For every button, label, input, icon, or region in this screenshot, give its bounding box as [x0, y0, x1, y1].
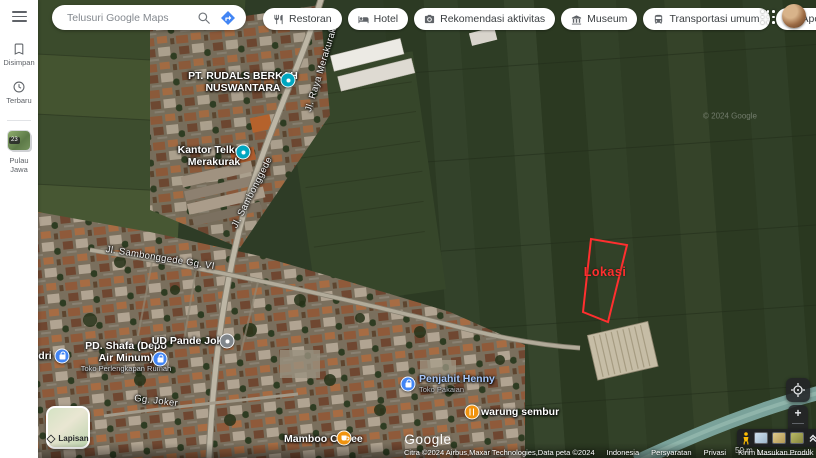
chip-rekomendasi-aktivitas[interactable]: Rekomendasi aktivitas [414, 8, 555, 30]
store-marker-pd-shafa[interactable] [153, 352, 168, 367]
menu-icon[interactable] [12, 11, 27, 22]
link-indonesia[interactable]: Indonesia [607, 448, 640, 457]
search-icon[interactable] [197, 11, 211, 25]
chip-label: Transportasi umum [669, 13, 759, 25]
shopping-bag-icon [405, 383, 411, 388]
search-bar[interactable] [52, 5, 246, 30]
museum-icon [571, 14, 582, 25]
store-marker-penjahit-henny[interactable] [401, 377, 416, 392]
bookmark-icon [12, 42, 26, 56]
bus-icon [653, 14, 664, 25]
locate-icon [791, 383, 805, 397]
generic-marker-ud-pande-joker[interactable] [220, 334, 235, 349]
recent-map-badge: 23 [9, 137, 20, 144]
imagery-thumbnail[interactable] [790, 432, 804, 444]
chip-label: Museum [587, 13, 627, 25]
layers-label: Lapisan [58, 434, 88, 443]
sidebar-item-terbaru[interactable]: Terbaru [6, 80, 31, 105]
directions-icon[interactable] [220, 10, 236, 26]
link-kirim-masukan[interactable]: Kirim Masukan Produk [738, 448, 813, 457]
shopping-bag-icon [157, 358, 163, 363]
avatar[interactable] [782, 4, 806, 28]
pegman-icon[interactable] [742, 432, 750, 445]
sidebar-item-label: Disimpan [3, 58, 34, 67]
poi-dot-icon [225, 339, 229, 343]
poi-marker-pt-rudals[interactable] [281, 73, 296, 88]
hotel-icon [358, 14, 369, 25]
sidebar: Disimpan Terbaru 23 Pulau Jawa [0, 0, 38, 458]
recent-map-thumbnail[interactable]: 23 [8, 131, 30, 150]
attribution-text: Citra ©2024 Airbus,Maxar Technologies,Da… [404, 448, 595, 457]
category-chips: Restoran Hotel Rekomendasi aktivitas Mus… [263, 8, 816, 30]
recent-map-label: Pulau Jawa [9, 156, 28, 174]
sidebar-divider [7, 120, 31, 121]
coffee-cup-icon [342, 436, 347, 441]
fork-icon [469, 409, 476, 416]
link-persyaratan[interactable]: Persyaratan [651, 448, 691, 457]
sidebar-item-label: Terbaru [6, 96, 31, 105]
zoom-in-button[interactable]: + [788, 406, 808, 420]
restaurant-icon [273, 14, 284, 25]
layers-icon [47, 434, 56, 443]
chip-label: Rekomendasi aktivitas [440, 13, 545, 25]
zoom-divider [792, 423, 804, 424]
food-marker-warung-sembur[interactable] [465, 405, 480, 420]
chip-label: Hotel [374, 13, 399, 25]
poi-dot-icon [286, 78, 290, 82]
chip-transportasi-umum[interactable]: Transportasi umum [643, 8, 769, 30]
google-maps-window: PT. RUDALS BERKAH NUSWANTARA Kantor Telk… [0, 0, 816, 458]
chip-museum[interactable]: Museum [561, 8, 637, 30]
sidebar-recent-map-pulau-jawa[interactable]: 23 Pulau Jawa [8, 131, 30, 174]
chevron-up-icon[interactable] [808, 433, 816, 443]
attribution-bar: Citra ©2024 Airbus,Maxar Technologies,Da… [404, 448, 814, 457]
chip-hotel[interactable]: Hotel [348, 8, 409, 30]
shopping-bag-icon [59, 355, 65, 360]
camera-icon [424, 14, 435, 25]
poi-marker-kantor-telkom[interactable] [236, 145, 251, 160]
store-marker-left[interactable] [55, 349, 70, 364]
imagery-thumbnail[interactable] [754, 432, 768, 444]
imagery-carousel-bar [737, 429, 816, 447]
chip-restoran[interactable]: Restoran [263, 8, 342, 30]
poi-dot-icon [241, 150, 245, 154]
history-icon [12, 80, 26, 94]
link-privasi[interactable]: Privasi [704, 448, 727, 457]
apps-grid-icon[interactable] [761, 10, 775, 24]
chip-label: Restoran [289, 13, 332, 25]
my-location-button[interactable] [786, 378, 810, 402]
sidebar-item-disimpan[interactable]: Disimpan [3, 42, 34, 67]
coffee-marker-mamboo[interactable] [337, 431, 352, 446]
search-input[interactable] [65, 11, 197, 25]
layers-button[interactable]: Lapisan [46, 406, 90, 449]
imagery-thumbnail[interactable] [772, 432, 786, 444]
